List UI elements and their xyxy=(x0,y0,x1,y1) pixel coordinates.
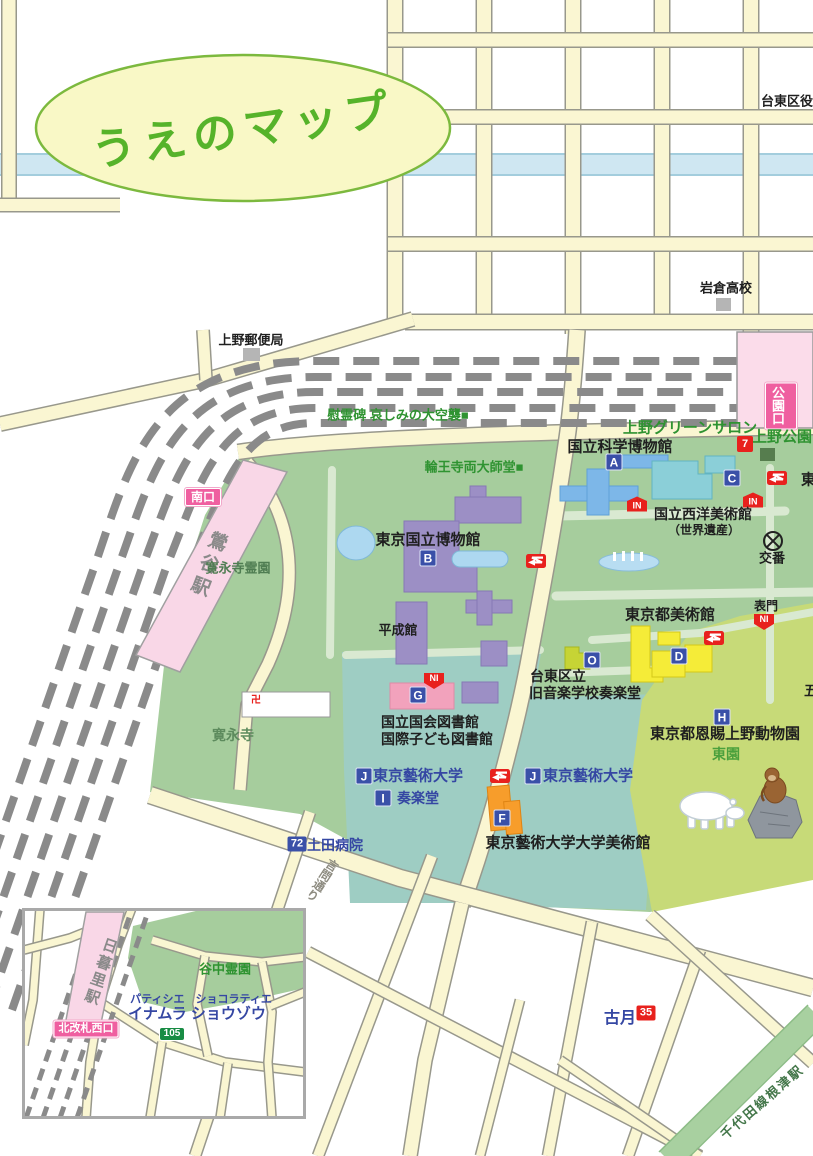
label-kototoi-dori: 言問通り xyxy=(304,857,340,904)
label-geidai-west: 東京藝術大学 xyxy=(373,769,463,784)
label-layer: うえのマップ 台東区役所 岩倉高校 上野郵便局 慰霊碑 哀しみの大空襲■ 輪王寺… xyxy=(0,0,813,1156)
map-badge-d: D xyxy=(671,648,688,665)
entrance-ni-badge: NI xyxy=(424,673,444,689)
map-badge-b: B xyxy=(420,550,437,567)
label-geidai-east: 東京藝術大学 xyxy=(543,769,633,784)
label-sogakudo: 奏楽堂 xyxy=(397,791,439,805)
label-yanaka-cemetery: 谷中霊園 xyxy=(199,963,251,976)
label-kogetsu: 古月 xyxy=(604,1011,636,1027)
label-memorial: 慰霊碑 哀しみの大空襲■ xyxy=(327,409,468,422)
label-kaneiji-cemetery: 寛永寺霊園 xyxy=(205,562,270,575)
map-badge-j-west: J xyxy=(356,768,373,785)
map-badge-i: I xyxy=(375,790,392,807)
map-badge-f: F xyxy=(494,810,511,827)
label-world-heritage: （世界遺産） xyxy=(668,524,740,536)
south-exit-badge: 南口 xyxy=(185,488,221,506)
label-kaneiji: 寛永寺 xyxy=(212,728,254,742)
label-taito-line2: 旧音楽学校奏楽堂 xyxy=(529,686,641,700)
map-badge-105: 105 xyxy=(159,1027,185,1041)
map-badge-c: C xyxy=(724,470,741,487)
label-national-museum: 東京国立博物館 xyxy=(375,533,480,548)
map-badge-35: 35 xyxy=(637,1006,656,1021)
map-badge-o: O xyxy=(584,652,601,669)
label-taito-ward-office: 台東区役所 xyxy=(761,95,813,108)
label-taito-line1: 台東区立 xyxy=(530,669,586,683)
label-post-office: 上野郵便局 xyxy=(218,334,283,347)
label-library-line1: 国立国会図書館 xyxy=(381,715,479,729)
map-badge-h: H xyxy=(714,709,731,726)
map-badge-j-east: J xyxy=(525,768,542,785)
label-library-line2: 国際子ども図書館 xyxy=(381,732,493,746)
label-iwakura-high: 岩倉高校 xyxy=(700,282,752,295)
entrance-ni-badge: NI xyxy=(754,614,774,630)
label-inamura: イナムラ ショウゾウ xyxy=(128,1007,266,1022)
label-omote-gate: 表門 xyxy=(754,600,778,612)
label-science-museum: 国立科学博物館 xyxy=(567,440,672,455)
label-east-garden: 東園 xyxy=(712,747,740,761)
label-rinnoji: 輪王寺両大師堂■ xyxy=(425,461,524,474)
ueno-map: うえのマップ 台東区役所 岩倉高校 上野郵便局 慰霊碑 哀しみの大空襲■ 輪王寺… xyxy=(0,0,813,1156)
map-badge-7: 7 xyxy=(737,436,753,452)
map-badge-a: A xyxy=(606,454,623,471)
label-nezu-line: 千代田線根津駅 xyxy=(718,1063,806,1142)
label-ueno-park: 上野公園 xyxy=(752,430,812,445)
north-west-exit-badge: 北改札西口 xyxy=(54,1021,119,1038)
label-metro-art: 東京都美術館 xyxy=(625,608,715,623)
entrance-in-badge: IN xyxy=(627,497,647,512)
map-title: うえのマップ xyxy=(87,73,399,179)
label-heiseikan: 平成館 xyxy=(378,624,417,637)
park-exit-badge: 公園口 xyxy=(765,383,797,430)
label-nippori-station: 日暮里駅 xyxy=(81,936,119,1009)
temple-mark-icon: 卍 xyxy=(251,696,261,706)
label-hospital: 土田病院 xyxy=(307,838,363,852)
map-badge-72: 72 xyxy=(288,837,307,852)
label-geidai-museum: 東京藝術大学大学美術館 xyxy=(485,836,650,851)
map-badge-g: G xyxy=(410,687,427,704)
label-green-salon: 上野グリーンサロン xyxy=(623,421,757,436)
label-zoo: 東京都恩賜上野動物園 xyxy=(650,727,800,742)
label-east-partial: 東 xyxy=(801,473,813,488)
label-koban: 交番 xyxy=(759,552,785,565)
label-western-art: 国立西洋美術館 xyxy=(654,507,752,521)
label-five-partial: 五 xyxy=(804,683,813,697)
label-patissier: パティシエ ショコラティエ xyxy=(130,995,272,1006)
